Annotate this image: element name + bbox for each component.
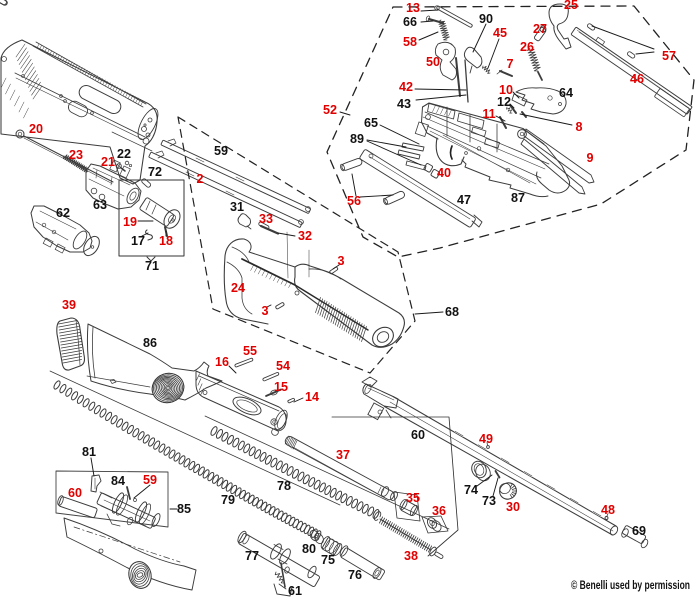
svg-text:72: 72 (148, 165, 162, 179)
svg-text:60: 60 (411, 428, 425, 442)
svg-text:64: 64 (559, 86, 573, 100)
svg-text:21: 21 (101, 155, 115, 169)
svg-text:60: 60 (68, 486, 82, 500)
svg-text:36: 36 (432, 504, 446, 518)
svg-text:16: 16 (215, 355, 229, 369)
svg-text:7: 7 (506, 57, 513, 71)
svg-text:22: 22 (117, 147, 131, 161)
svg-text:73: 73 (482, 494, 496, 508)
svg-text:8: 8 (575, 120, 582, 134)
svg-text:37: 37 (336, 448, 350, 462)
svg-text:46: 46 (630, 72, 644, 86)
svg-text:32: 32 (298, 229, 312, 243)
svg-text:11: 11 (482, 107, 495, 121)
svg-text:42: 42 (399, 80, 413, 94)
svg-text:23: 23 (69, 148, 83, 162)
svg-text:3: 3 (261, 304, 268, 318)
svg-text:63: 63 (93, 198, 107, 212)
svg-text:78: 78 (277, 479, 291, 493)
svg-text:87: 87 (511, 191, 525, 205)
svg-text:66: 66 (403, 15, 417, 29)
svg-text:30: 30 (506, 500, 520, 514)
svg-text:14: 14 (305, 390, 319, 404)
svg-text:47: 47 (457, 193, 471, 207)
svg-text:49: 49 (479, 432, 493, 446)
svg-text:59: 59 (214, 144, 228, 158)
svg-text:89: 89 (350, 132, 364, 146)
svg-text:59: 59 (143, 473, 157, 487)
svg-text:39: 39 (62, 298, 76, 312)
svg-text:20: 20 (29, 122, 43, 136)
svg-text:© Benelli used by permission: © Benelli used by permission (571, 578, 690, 592)
svg-text:85: 85 (177, 502, 191, 516)
svg-text:86: 86 (143, 336, 157, 350)
svg-text:17: 17 (131, 234, 145, 248)
svg-text:27: 27 (533, 22, 547, 36)
svg-text:90: 90 (479, 12, 493, 26)
svg-text:33: 33 (259, 212, 273, 226)
svg-text:48: 48 (601, 503, 615, 517)
svg-text:50: 50 (426, 55, 440, 69)
svg-text:71: 71 (145, 259, 159, 273)
svg-text:56: 56 (347, 194, 361, 208)
svg-text:84: 84 (111, 474, 125, 488)
svg-text:80: 80 (302, 542, 316, 556)
svg-text:62: 62 (56, 206, 70, 220)
svg-text:69: 69 (632, 524, 646, 538)
svg-text:52: 52 (323, 103, 337, 117)
svg-text:57: 57 (662, 49, 676, 63)
svg-text:24: 24 (231, 281, 245, 295)
svg-text:75: 75 (321, 553, 335, 567)
svg-text:58: 58 (403, 35, 417, 49)
svg-text:26: 26 (520, 40, 534, 54)
svg-text:68: 68 (445, 305, 459, 319)
svg-text:31: 31 (230, 200, 244, 214)
svg-text:40: 40 (437, 166, 451, 180)
svg-text:18: 18 (159, 234, 173, 248)
svg-text:74: 74 (464, 483, 478, 497)
svg-text:25: 25 (564, 0, 578, 12)
svg-text:12: 12 (497, 95, 511, 109)
svg-text:45: 45 (493, 26, 507, 40)
svg-text:81: 81 (82, 445, 96, 459)
svg-text:79: 79 (221, 493, 235, 507)
svg-text:19: 19 (123, 215, 137, 229)
svg-text:55: 55 (243, 344, 257, 358)
svg-text:9: 9 (586, 151, 593, 165)
svg-text:35: 35 (406, 491, 420, 505)
svg-text:2: 2 (196, 172, 203, 186)
svg-text:38: 38 (404, 549, 418, 563)
svg-text:61: 61 (288, 584, 302, 598)
svg-text:15: 15 (274, 380, 288, 394)
svg-text:3: 3 (337, 254, 344, 268)
svg-text:76: 76 (348, 568, 362, 582)
svg-text:13: 13 (406, 1, 420, 15)
svg-text:77: 77 (245, 549, 259, 563)
svg-text:65: 65 (364, 116, 378, 130)
svg-text:43: 43 (397, 97, 411, 111)
svg-text:54: 54 (276, 359, 290, 373)
